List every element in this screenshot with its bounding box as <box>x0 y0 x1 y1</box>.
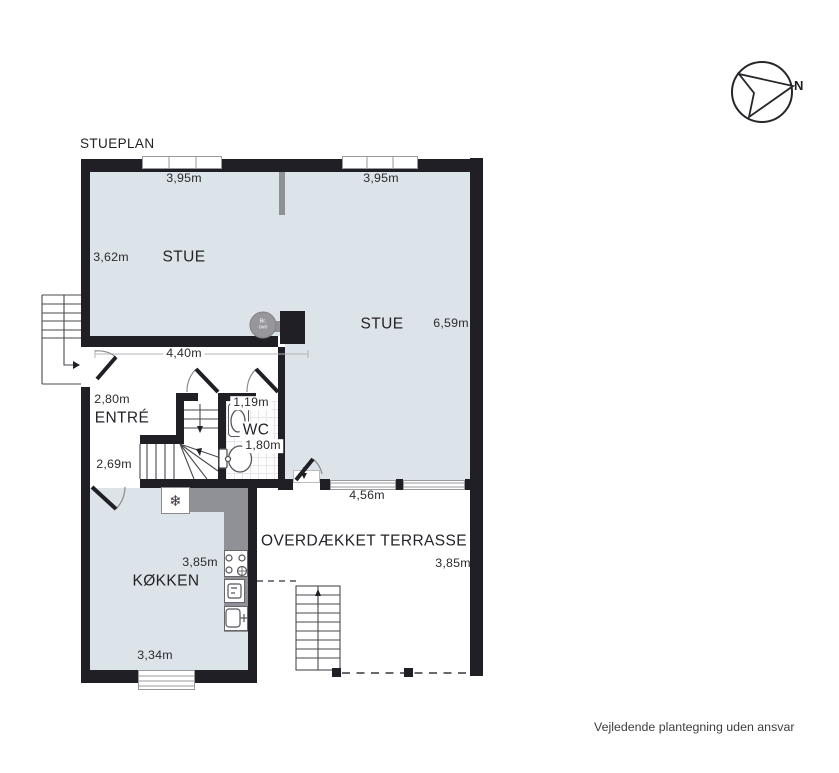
window-pier-partition <box>279 172 285 215</box>
dim-stue-right-top: 3,95m <box>363 172 398 186</box>
wall-east <box>470 158 483 676</box>
floorplan-canvas: STUEPLAN Vejledende plantegning uden ans… <box>0 0 839 773</box>
dim-stue-opening: 4,40m <box>163 347 204 361</box>
room-label-stue-right: STUE <box>361 315 404 332</box>
room-label-entre: ENTRÉ <box>95 409 150 426</box>
terrace-stairs <box>296 586 340 670</box>
room-label-wc: WC <box>240 421 273 438</box>
wood-stove-label: Br. ovn <box>259 319 268 332</box>
wall-west-upper <box>81 172 90 347</box>
compass-rose <box>732 62 793 122</box>
dim-entre-bottom: 2,69m <box>96 458 131 472</box>
freezer-snowflake-icon: ❄ <box>161 487 190 514</box>
kitchen-sink <box>224 606 248 631</box>
room-label-terrasse: OVERDÆKKET TERRASSE <box>261 532 467 549</box>
terrace-post-2 <box>404 668 413 677</box>
wall-wc-stue <box>278 347 285 480</box>
window-post-1 <box>278 479 293 490</box>
wall-kokken-east <box>248 479 257 683</box>
stair-door-leaf <box>196 369 218 392</box>
page-title: STUEPLAN <box>80 136 154 151</box>
window-post-3 <box>396 479 403 490</box>
dim-stue-right-side: 6,59m <box>433 317 468 331</box>
exterior-stairs-arrow <box>73 361 80 369</box>
stue-floor-lower <box>285 336 470 480</box>
dim-terrasse-side: 3,85m <box>435 557 470 571</box>
terrace-boundary <box>257 581 470 677</box>
room-label-kokken: KØKKEN <box>132 572 199 589</box>
window-north-right <box>342 156 418 169</box>
chimney-block <box>280 311 305 344</box>
dim-kokken-side: 3,85m <box>182 556 217 570</box>
wall-stair-mid <box>140 435 178 444</box>
dim-wc-top: 1,19m <box>230 396 271 410</box>
terrace-door-recess <box>293 470 320 483</box>
dim-stue-left-side: 3,62m <box>93 251 128 265</box>
terrace-stairs-up-arrow <box>315 589 321 596</box>
window-post-2 <box>320 479 330 490</box>
room-label-stue-left: STUE <box>163 248 206 265</box>
terrace-post-1 <box>332 668 341 677</box>
front-door-leaf <box>97 357 116 379</box>
window-kokken-south <box>138 670 195 690</box>
stove-cooktop <box>224 550 248 577</box>
window-north-left <box>142 156 222 169</box>
dim-kokken-bottom: 3,34m <box>137 649 172 663</box>
window-post-4 <box>465 479 483 490</box>
window-stue-terrasse-2 <box>403 480 465 490</box>
wall-west-lower <box>81 387 90 683</box>
dim-entre-side: 2,80m <box>94 393 129 407</box>
stairs-down-arrow <box>197 426 203 433</box>
wall-wc-west <box>218 401 226 479</box>
stairs-turn-arrow <box>196 448 202 456</box>
dim-wc-side: 1,80m <box>242 439 283 453</box>
oven <box>224 579 245 603</box>
compass-north-label: N <box>794 78 803 93</box>
dim-terrasse-top: 4,56m <box>349 489 384 503</box>
disclaimer-text: Vejledende plantegning uden ansvar <box>594 720 794 734</box>
exterior-stairs <box>42 295 81 384</box>
dim-stue-left-top: 3,95m <box>166 172 201 186</box>
wc-door-leaf <box>256 369 278 392</box>
kitchen-counter-top <box>188 488 248 512</box>
